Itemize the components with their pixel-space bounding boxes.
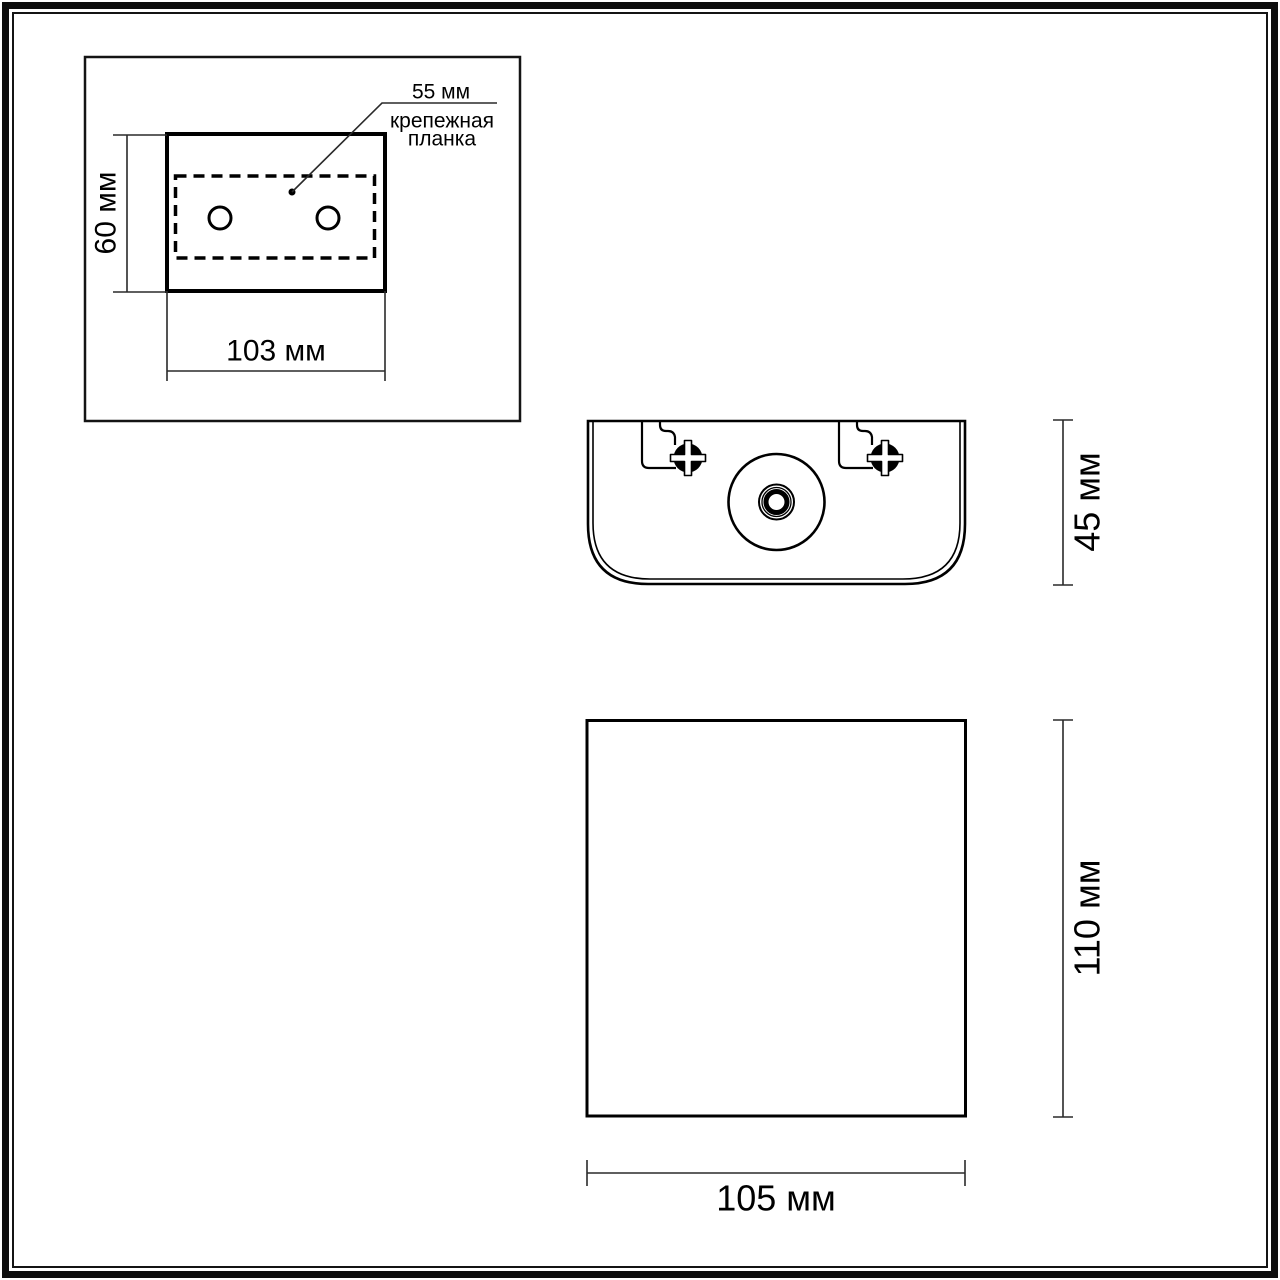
bracket-upper-arm — [857, 422, 872, 445]
dimension-label-depth: 45 мм — [1067, 452, 1108, 552]
body-inner-contour — [593, 421, 960, 579]
screw-hole-right — [317, 207, 339, 229]
phillips-screw-icon — [868, 441, 903, 476]
dimension-label-template-height: 60 мм — [90, 172, 123, 255]
mounting-plate-dashed-outline — [176, 176, 375, 258]
top-view: 45 мм — [588, 420, 1108, 585]
front-view: 110 мм 105 мм — [587, 720, 1108, 1219]
cable-gland — [729, 454, 825, 550]
screw-cross-slot — [868, 441, 903, 476]
phillips-screw-icon — [671, 441, 706, 476]
drawing-canvas: 60 мм 103 мм 55 мм крепежная планка — [0, 0, 1280, 1280]
mounting-bracket-left — [642, 422, 706, 476]
mounting-template-inset: 60 мм 103 мм 55 мм крепежная планка — [85, 57, 520, 421]
gland-nipple — [766, 492, 787, 513]
dimension-label-body-height: 110 мм — [1067, 860, 1108, 977]
dimension-label-plate-width: 55 мм — [412, 81, 470, 104]
screw-cross-slot — [671, 441, 706, 476]
body-outer-contour — [588, 421, 965, 584]
technical-drawing: 60 мм 103 мм 55 мм крепежная планка — [0, 0, 1280, 1280]
body-front-outline — [587, 721, 966, 1117]
mounting-bracket-right — [839, 422, 903, 476]
dimension-label-body-width: 105 мм — [716, 1178, 836, 1219]
back-plate-outline — [167, 134, 385, 291]
dimension-label-template-width: 103 мм — [226, 335, 326, 368]
screw-hole-left — [209, 207, 231, 229]
gland-outer-circle — [729, 454, 825, 550]
bracket-upper-arm — [660, 422, 675, 445]
mounting-plate-note-line2: планка — [408, 128, 477, 151]
